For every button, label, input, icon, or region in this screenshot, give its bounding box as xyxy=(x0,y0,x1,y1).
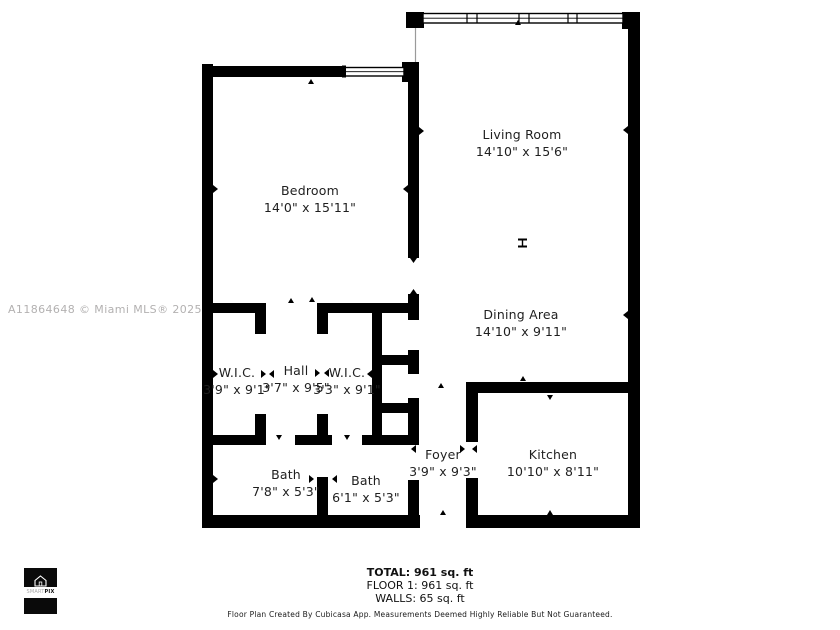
logo-wordmark: SMARTPIX xyxy=(24,587,57,598)
room-dims: 6'1" x 5'3" xyxy=(332,489,400,506)
window-symbol-bedroom xyxy=(342,66,404,78)
room-dims: 3'9" x 9'3" xyxy=(409,463,477,480)
room-label-wic-right: W.I.C. 3'3" x 9'1" xyxy=(313,364,381,398)
room-dims: 14'0" x 15'11" xyxy=(264,199,356,216)
room-label-living-room: Living Room 14'10" x 15'6" xyxy=(476,126,568,160)
floor1-area-text: FLOOR 1: 961 sq. ft xyxy=(0,579,840,592)
room-name: Hall xyxy=(284,363,309,378)
room-label-bath-right: Bath 6'1" x 5'3" xyxy=(332,472,400,506)
room-name: W.I.C. xyxy=(329,365,365,380)
room-label-foyer: Foyer 3'9" x 9'3" xyxy=(409,446,477,480)
room-label-kitchen: Kitchen 10'10" x 8'11" xyxy=(507,446,599,480)
room-name: Bath xyxy=(351,473,381,488)
room-dims: 3'9" x 9'1" xyxy=(203,381,271,398)
logo-suffix: PIX xyxy=(45,587,55,598)
room-dims: 7'8" x 5'3" xyxy=(252,483,320,500)
window-symbol-living-room xyxy=(423,14,623,24)
room-name: Bath xyxy=(271,467,301,482)
floorplan-page: Living Room 14'10" x 15'6" Bedroom 14'0"… xyxy=(0,0,840,630)
room-label-bedroom: Bedroom 14'0" x 15'11" xyxy=(264,182,356,216)
area-summary: TOTAL: 961 sq. ft FLOOR 1: 961 sq. ft WA… xyxy=(0,566,840,619)
room-dims: 10'10" x 8'11" xyxy=(507,463,599,480)
walls-area-text: WALLS: 65 sq. ft xyxy=(0,592,840,605)
total-area-text: TOTAL: 961 sq. ft xyxy=(0,566,840,579)
room-name: Foyer xyxy=(425,447,461,462)
room-name: W.I.C. xyxy=(219,365,255,380)
room-name: Dining Area xyxy=(483,307,558,322)
fixture-mark-icon xyxy=(518,240,527,247)
disclaimer-text: Floor Plan Created By Cubicasa App. Meas… xyxy=(0,610,840,619)
mls-watermark: A11864648 © Miami MLS® 2025 xyxy=(8,303,202,316)
room-name: Bedroom xyxy=(281,183,339,198)
room-dims: 3'3" x 9'1" xyxy=(313,381,381,398)
room-name: Living Room xyxy=(483,127,562,142)
door-opening-arrows xyxy=(213,20,628,515)
logo-prefix: SMART xyxy=(26,587,44,598)
room-dims: 14'10" x 9'11" xyxy=(475,323,567,340)
room-dims: 14'10" x 15'6" xyxy=(476,143,568,160)
room-name: Kitchen xyxy=(529,447,577,462)
room-label-dining-area: Dining Area 14'10" x 9'11" xyxy=(475,306,567,340)
house-icon xyxy=(34,575,47,587)
smartpix-logo: SMARTPIX xyxy=(24,568,57,614)
room-label-wic-left: W.I.C. 3'9" x 9'1" xyxy=(203,364,271,398)
room-label-bath-left: Bath 7'8" x 5'3" xyxy=(252,466,320,500)
